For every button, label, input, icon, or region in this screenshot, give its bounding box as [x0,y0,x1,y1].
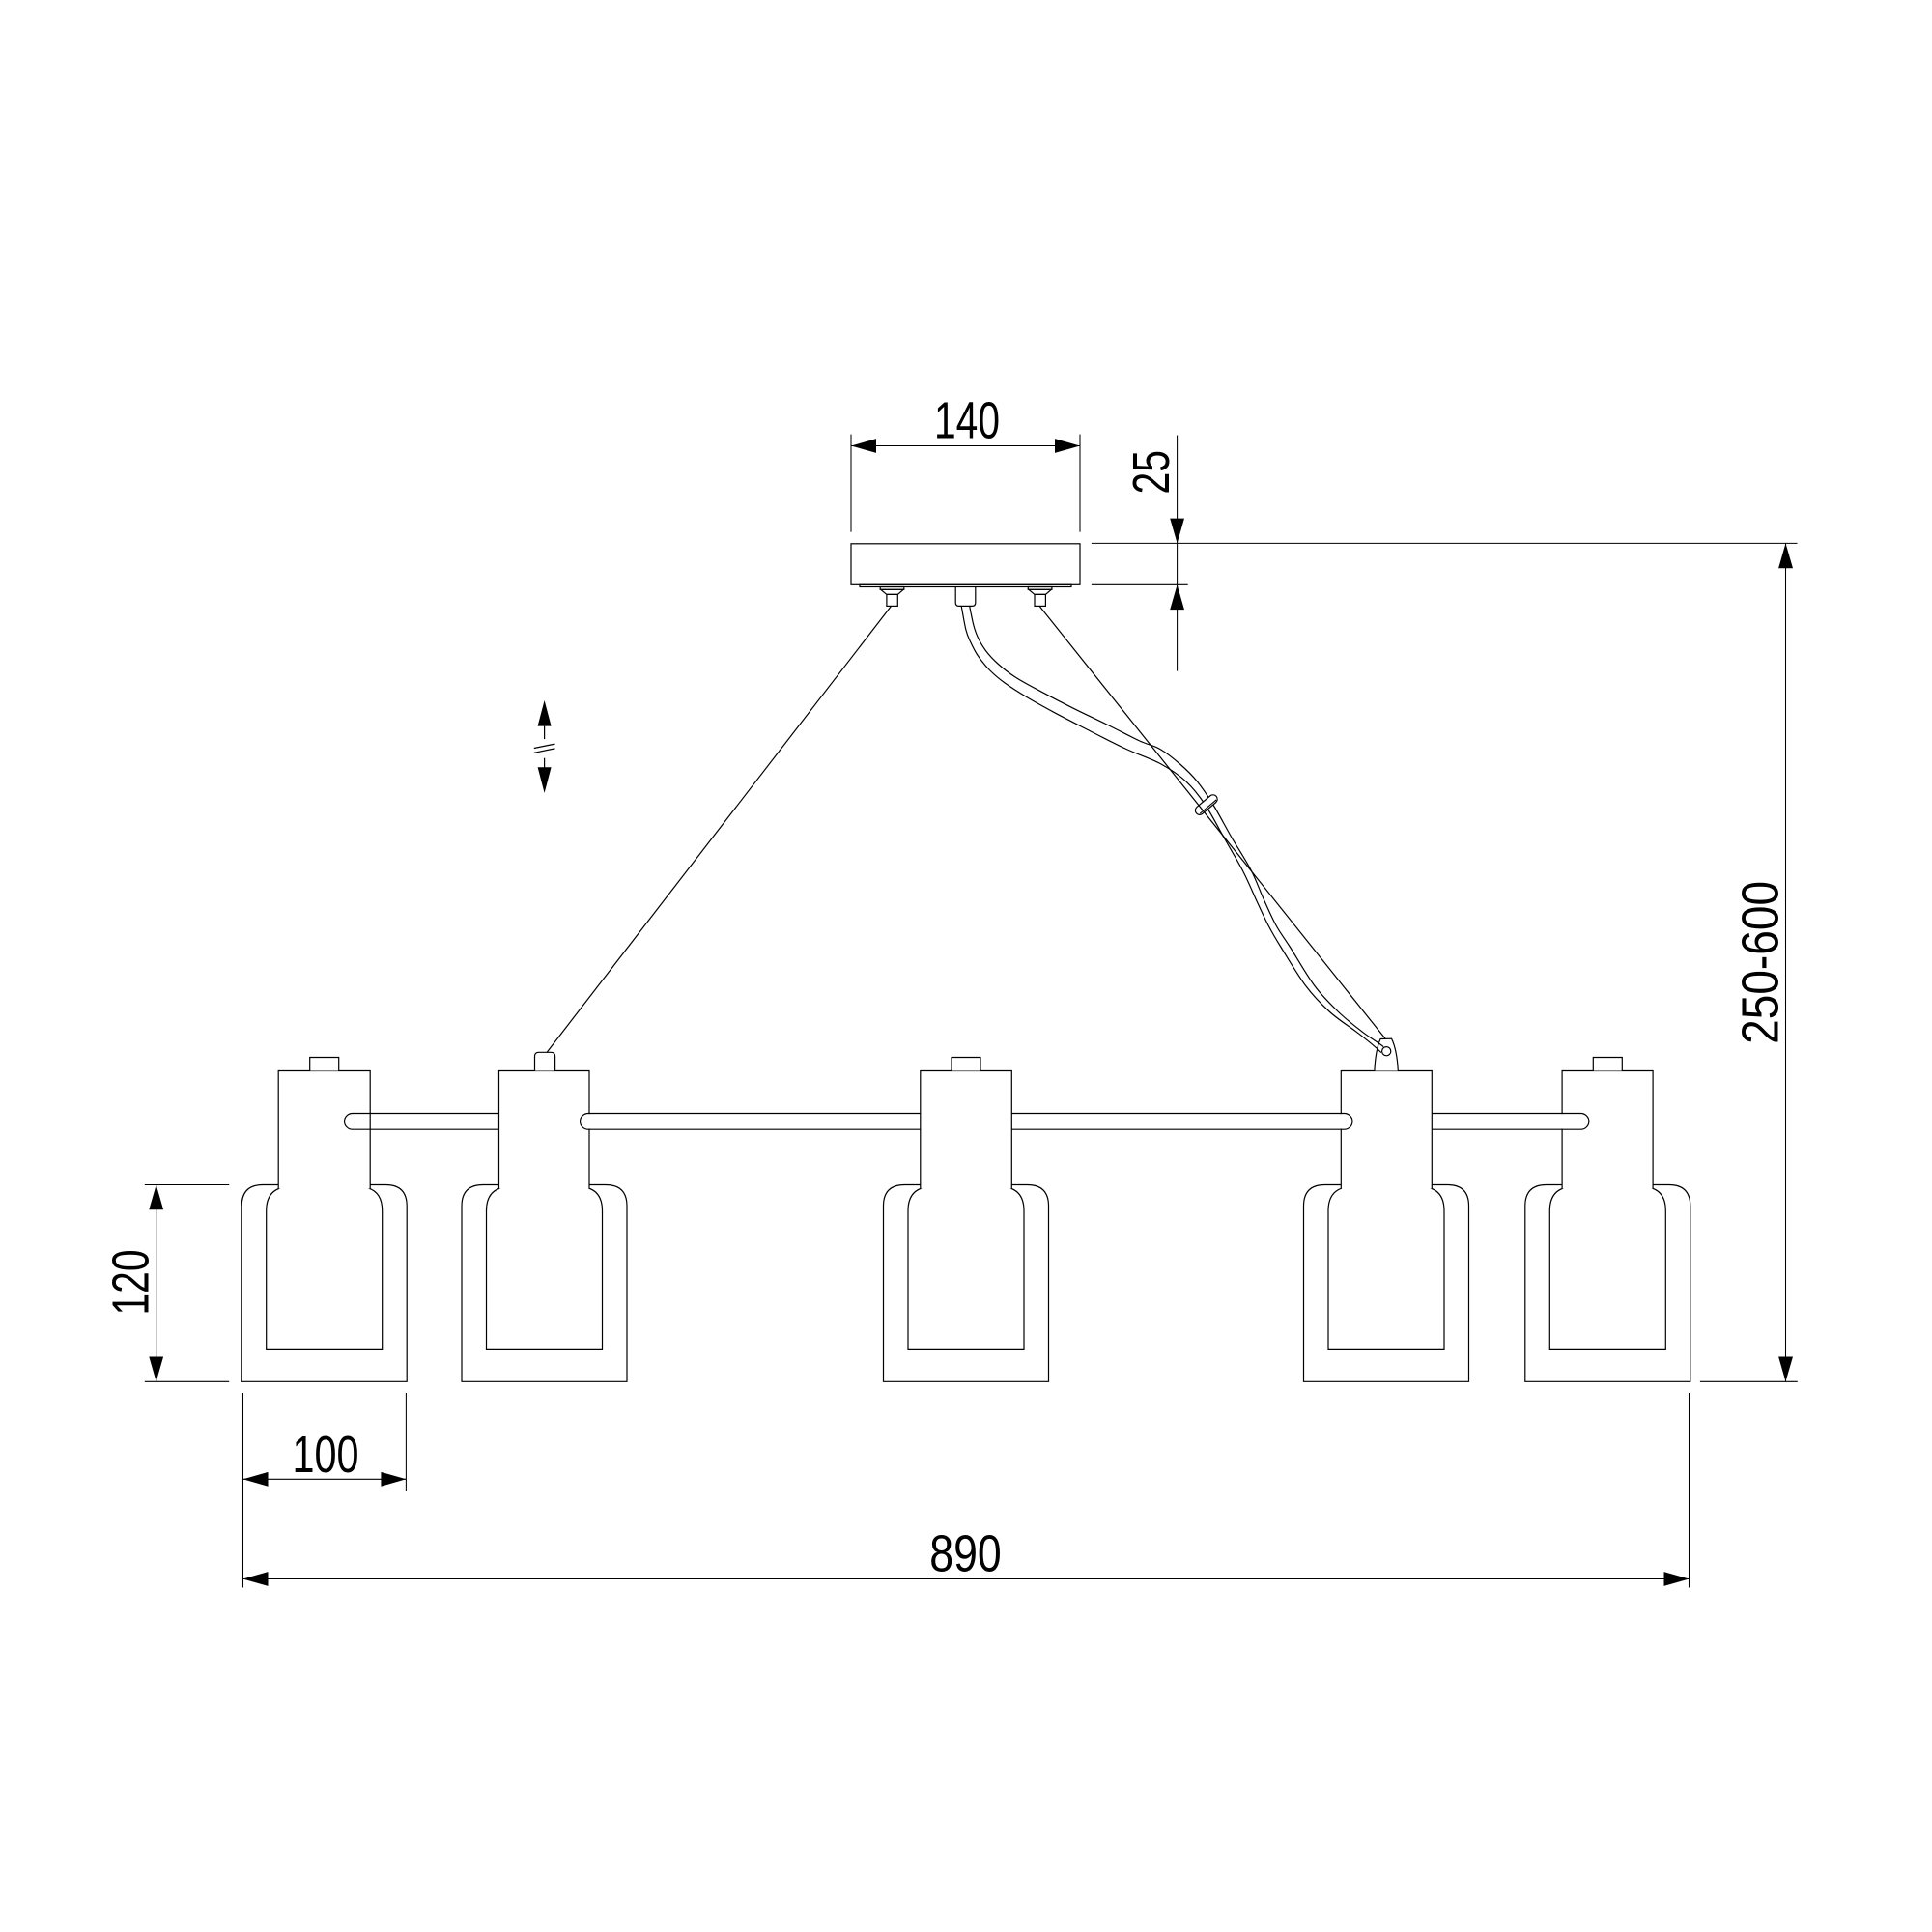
svg-text:250-600: 250-600 [1731,881,1789,1044]
svg-text:120: 120 [101,1250,159,1316]
svg-text:25: 25 [1122,450,1180,495]
svg-text:890: 890 [929,1524,1002,1582]
svg-text:140: 140 [934,391,1000,449]
svg-text:100: 100 [293,1426,359,1484]
